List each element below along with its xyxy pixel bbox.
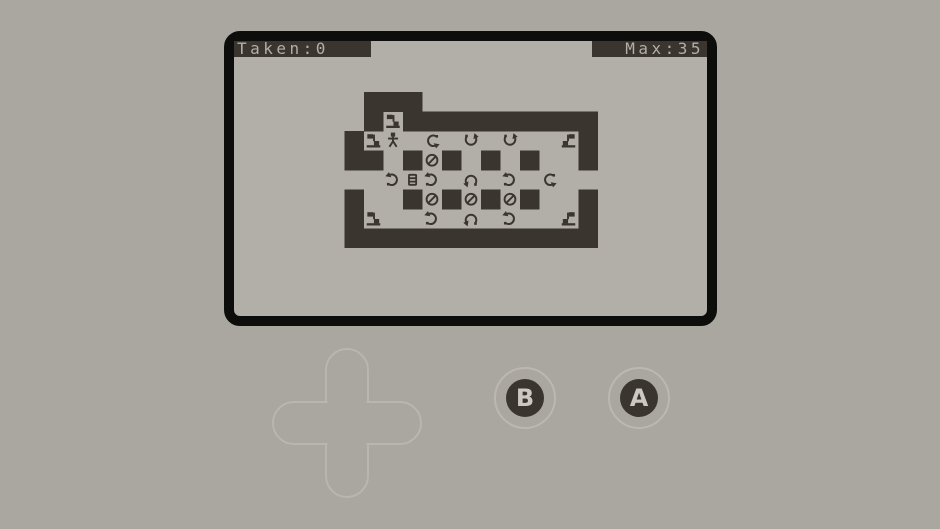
turn-arrow-open-bottom-tile [463,215,476,227]
wall-tile [403,190,423,210]
flag-marker-mirrored-tile [562,134,576,147]
wall-tile [383,229,403,249]
wall-tile [403,112,423,132]
wall-tile [500,229,520,249]
turn-arrow-open-top-tile [465,133,478,145]
turn-arrow-open-right-tile [428,135,440,148]
wall-tile [403,92,423,112]
wall-tile [383,92,403,112]
wall-tile [442,229,462,249]
door-tile-tile [409,175,416,185]
wall-tile [520,190,540,210]
wall-tile [520,112,540,132]
hud-max-counter: Max:35 [592,41,707,57]
wall-tile [481,190,501,210]
wall-tile [578,151,598,171]
wall-tile [364,151,384,171]
wall-tile [422,112,442,132]
wall-tile [539,229,559,249]
wall-tile [578,112,598,132]
dpad[interactable] [265,341,429,505]
wall-tile [578,209,598,229]
flag-marker-tile [386,115,400,128]
wall-tile [403,229,423,249]
flag-marker-mirrored-tile [562,212,576,225]
wall-tile [344,131,364,151]
wall-tile [481,229,501,249]
wall-tile [500,112,520,132]
wall-tile [481,112,501,132]
flag-marker-tile [367,212,381,225]
no-entry-sign-tile [427,194,438,205]
handheld-console: Taken:0 Max:35 [0,0,940,529]
no-entry-sign-tile [427,155,438,166]
wall-tile [559,112,579,132]
button-b-face: B [506,379,544,417]
no-entry-sign-tile [466,194,477,205]
wall-tile [344,190,364,210]
button-a-label: A [630,386,649,410]
button-b[interactable]: B [494,367,556,429]
wall-tile [578,229,598,249]
game-map [344,92,598,248]
wall-tile [461,112,481,132]
turn-arrow-open-bottom-tile [463,176,476,188]
wall-tile [481,151,501,171]
turn-arrow-open-left-tile [502,211,514,224]
wall-tile [442,112,462,132]
wall-tile [344,151,364,171]
wall-tile [422,229,442,249]
flag-marker-tile [367,134,381,147]
player-character-tile [388,133,398,147]
wall-tile [520,151,540,171]
wall-tile [442,151,462,171]
wall-tile [403,151,423,171]
button-a[interactable]: A [608,367,670,429]
wall-tile [461,229,481,249]
wall-tile [578,190,598,210]
turn-arrow-open-left-tile [424,172,436,185]
button-a-face: A [620,379,658,417]
turn-arrow-open-left-tile [385,172,397,185]
wall-tile [364,112,384,132]
button-b-label: B [516,386,534,410]
wall-tile [344,209,364,229]
game-screen: Taken:0 Max:35 [224,31,717,326]
wall-tile [442,190,462,210]
wall-tile [539,112,559,132]
turn-arrow-open-top-tile [504,133,517,145]
wall-tile [559,229,579,249]
turn-arrow-open-right-tile [545,174,557,187]
turn-arrow-open-left-tile [502,172,514,185]
wall-tile [578,131,598,151]
wall-tile [520,229,540,249]
wall-tile [344,229,364,249]
no-entry-sign-tile [505,194,516,205]
wall-tile [364,92,384,112]
wall-tile [364,229,384,249]
hud-taken-counter: Taken:0 [234,41,371,57]
turn-arrow-open-left-tile [424,211,436,224]
